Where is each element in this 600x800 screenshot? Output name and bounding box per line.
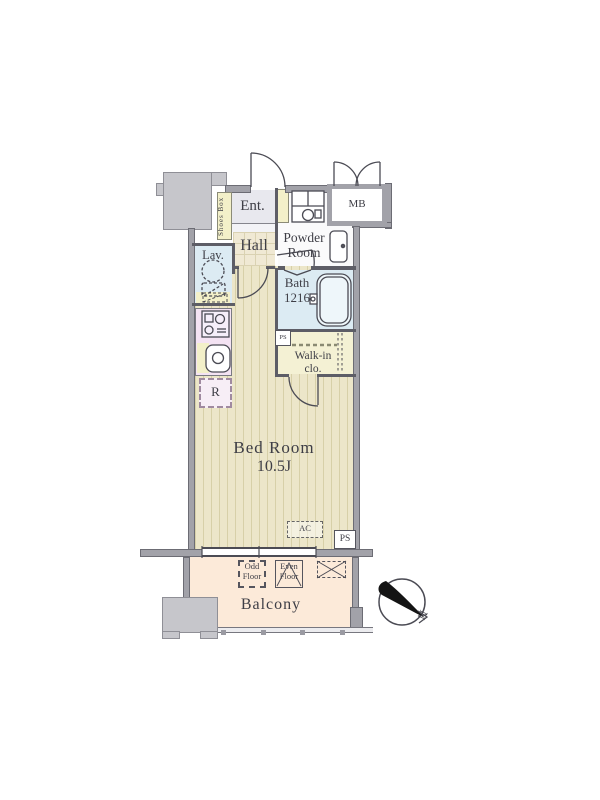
plan-linework (0, 0, 600, 800)
vanity-icon (292, 191, 324, 222)
lavatory-counter-hatch (203, 293, 227, 302)
bathtub-icon (310, 274, 351, 326)
hall-door (238, 268, 268, 298)
meter-box-label: MB (332, 198, 382, 210)
floor-plan: Ent. Shoes Box MB Hall Powder Room Lav. … (0, 0, 600, 800)
toilet-icon (202, 260, 225, 296)
bedroom-label: Bed Room (195, 438, 353, 457)
bedroom-size-label: 10.5J (195, 458, 353, 476)
stove-icon (202, 311, 229, 337)
lavatory-label: Lav. (194, 248, 232, 262)
kitchen-sink-icon (206, 345, 230, 372)
entrance-label: Ent. (230, 198, 275, 215)
balcony-label: Balcony (190, 596, 352, 614)
even-floor-label: Even Floor (275, 562, 303, 581)
ps-lower-label: PS (334, 534, 356, 545)
refrigerator-label: R (199, 385, 232, 400)
shoes-box-label: Shoes Box (218, 195, 231, 237)
ps-upper-label: PS (275, 334, 291, 341)
balcony-divider-x (317, 561, 346, 578)
entrance-door (251, 153, 285, 187)
walkin-door (289, 377, 318, 406)
bath-label: Bath 1216 (280, 276, 314, 305)
ac-label: AC (287, 524, 323, 534)
walk-in-closet-label: Walk-in clo. (282, 350, 344, 376)
window-ticks (202, 546, 316, 558)
odd-floor-label: Odd Floor (238, 562, 266, 581)
meter-box-doors (334, 162, 380, 186)
hall-label: Hall (233, 237, 275, 255)
powder-room-label: Powder Room (272, 230, 336, 260)
